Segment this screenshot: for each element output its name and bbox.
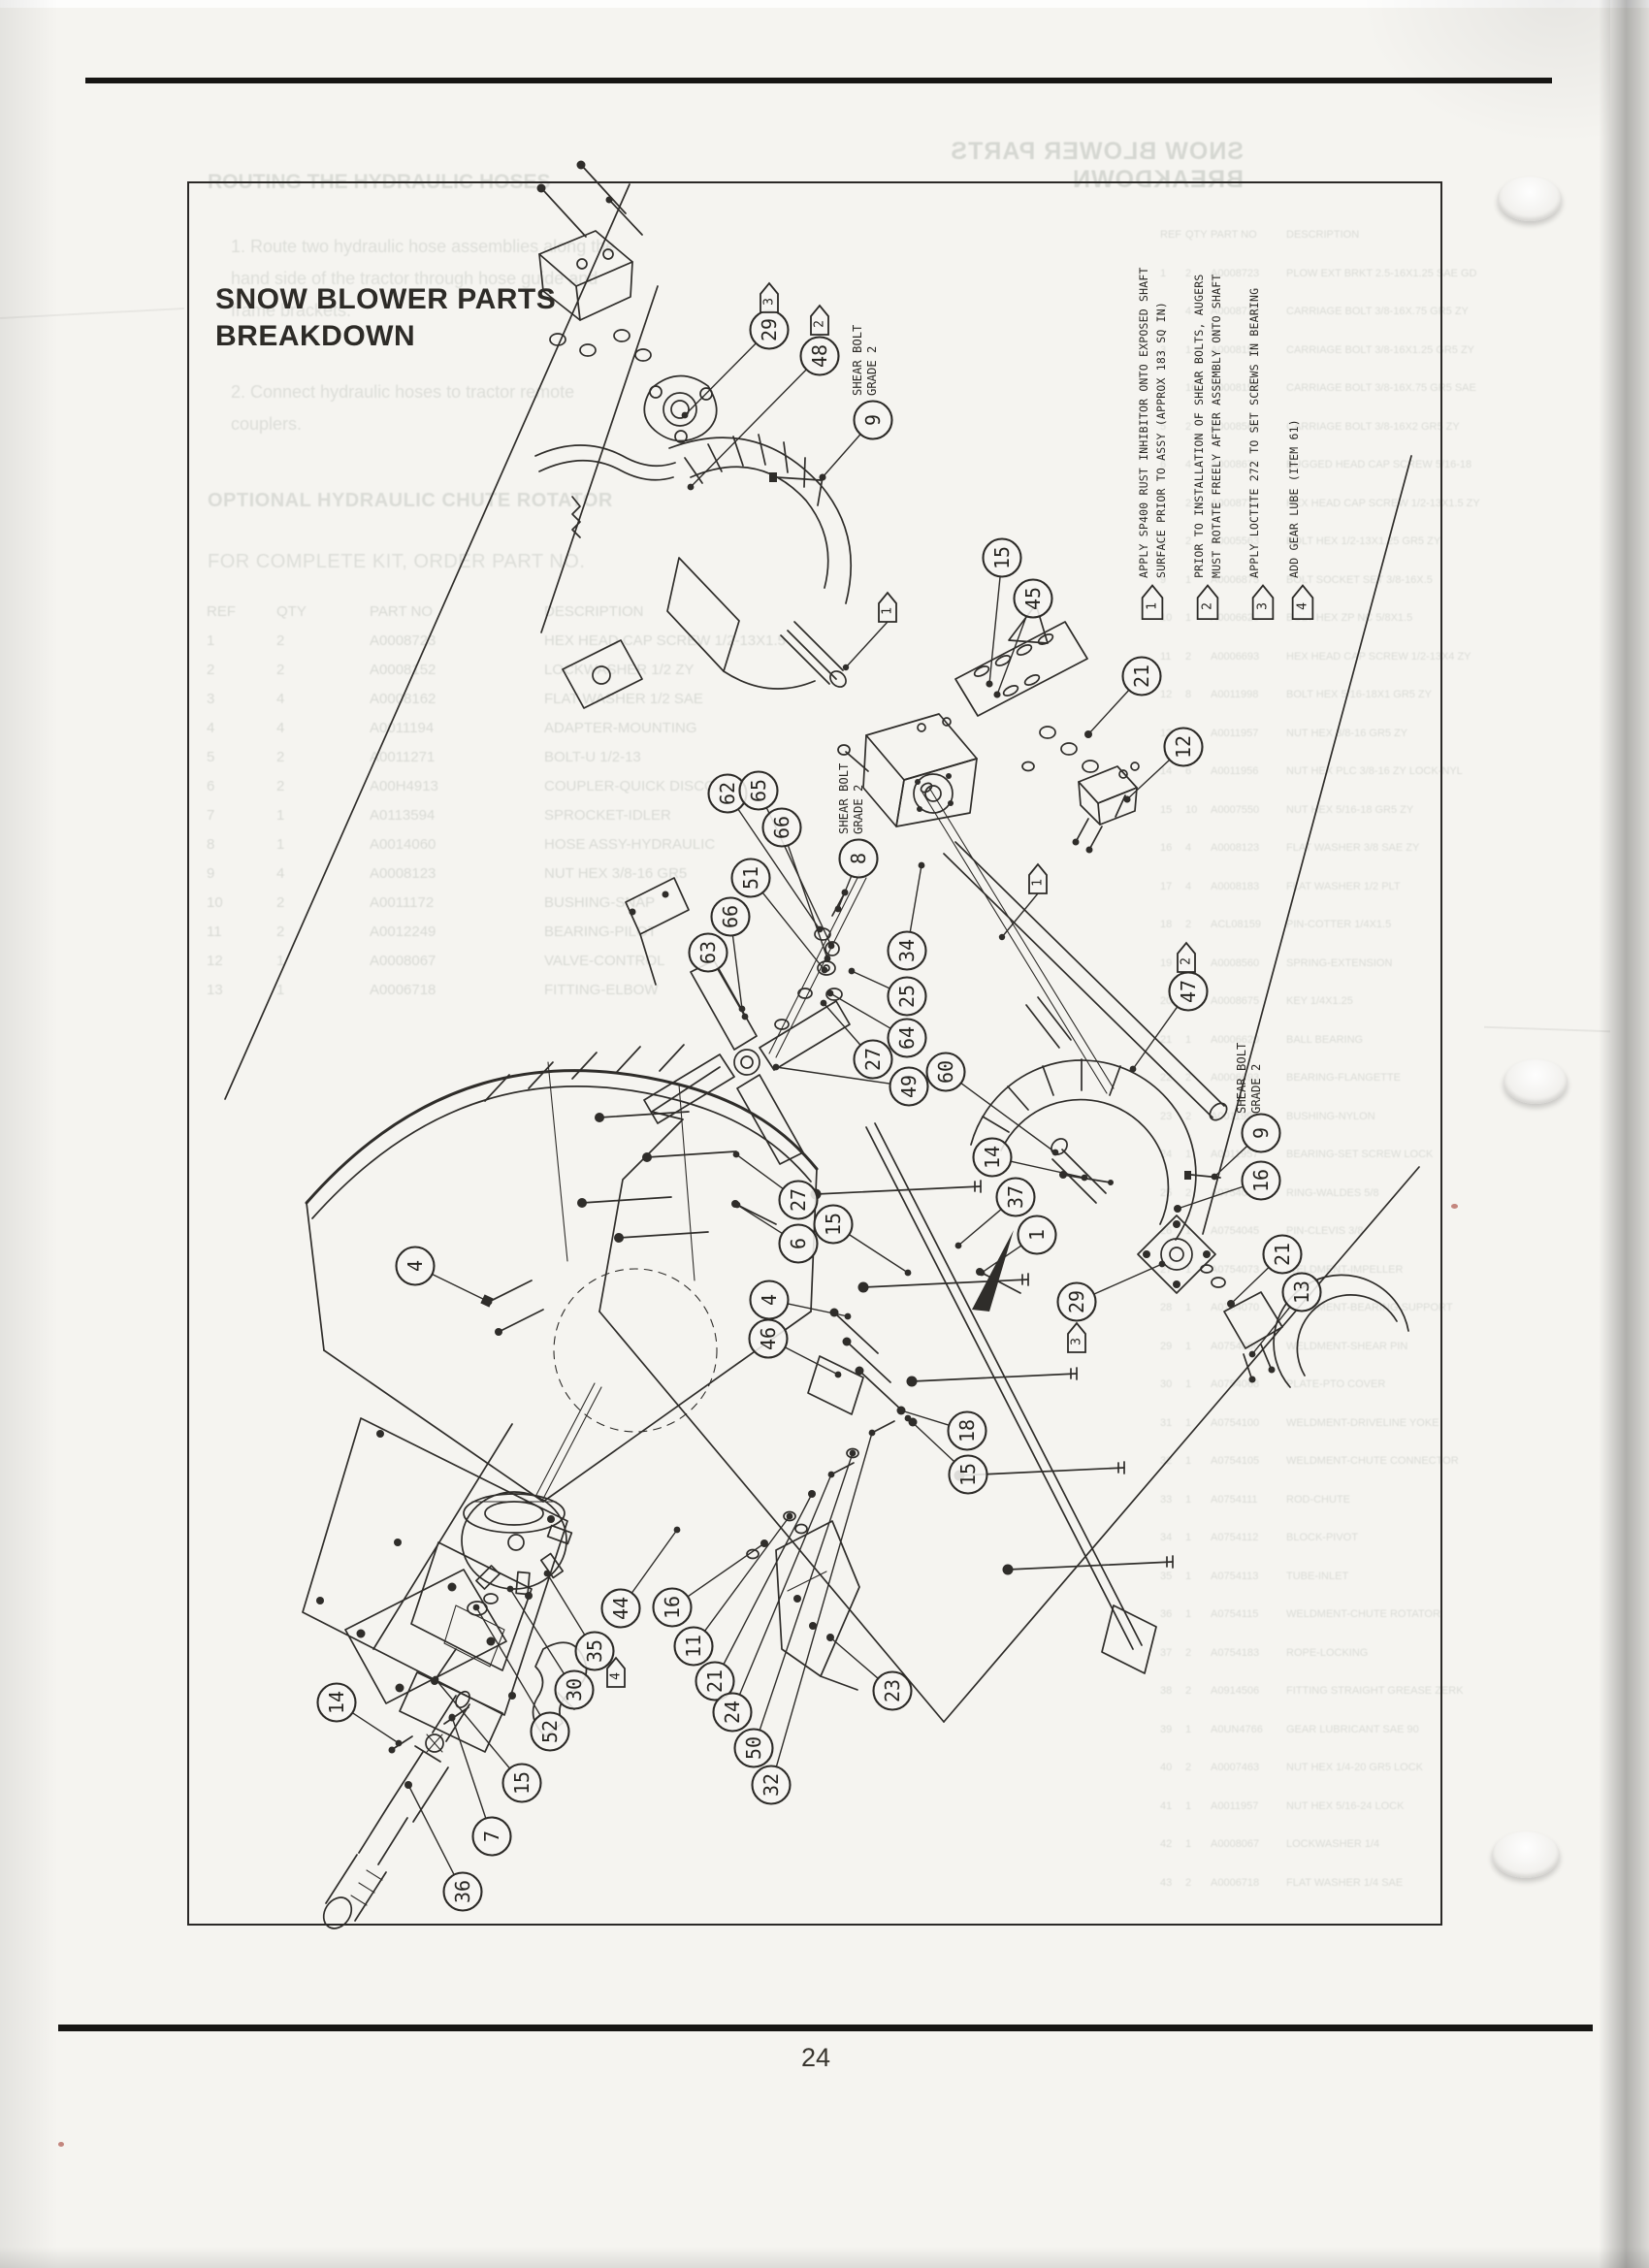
leader-line bbox=[830, 993, 890, 1028]
pennant-number: 4 bbox=[1296, 602, 1310, 610]
shear-bolt-label-line: SHEAR BOLT bbox=[1235, 1042, 1248, 1114]
note-text-line: ADD GEAR LUBE (ITEM 61) bbox=[1287, 419, 1301, 578]
leader-dot bbox=[734, 1202, 741, 1209]
pennant-number: 2 bbox=[1201, 602, 1215, 610]
callout-number: 1 bbox=[1025, 1229, 1049, 1241]
leader-dot bbox=[433, 1676, 439, 1683]
leader-line bbox=[718, 969, 745, 1017]
assembly-note-4: 4ADD GEAR LUBE (ITEM 61) bbox=[1287, 419, 1312, 619]
discharge-chute bbox=[667, 435, 851, 690]
callout-52: 52 bbox=[473, 1604, 569, 1751]
leader-dot bbox=[835, 906, 842, 913]
leader-dot bbox=[986, 681, 993, 688]
leader-dot bbox=[843, 664, 849, 670]
callout-number: 15 bbox=[990, 546, 1014, 569]
callout-49: 49 bbox=[773, 1064, 928, 1106]
callout-4: 4 bbox=[751, 1281, 852, 1320]
leader-dot bbox=[809, 1491, 816, 1498]
pennant-flag-2 bbox=[811, 306, 828, 335]
callout-number: 15 bbox=[822, 1213, 845, 1236]
callout-number: 16 bbox=[661, 1596, 684, 1619]
leader-line bbox=[760, 1453, 853, 1730]
leader-dot bbox=[1212, 1174, 1218, 1181]
flange-bearing-top bbox=[644, 375, 716, 442]
leader-dot bbox=[396, 1740, 403, 1747]
callout-number: 44 bbox=[609, 1597, 632, 1620]
shear-bolt-label-line: SHEAR BOLT bbox=[851, 324, 864, 396]
callout-number: 32 bbox=[760, 1773, 783, 1797]
pennant-flag-3 bbox=[760, 283, 778, 312]
diagram-pennant-2: 2 bbox=[1178, 943, 1195, 972]
pennant-number: 4 bbox=[609, 1672, 624, 1680]
pennant-number: 1 bbox=[1146, 602, 1160, 610]
leader-dot bbox=[1175, 1206, 1181, 1213]
callout-9: 9 bbox=[820, 402, 892, 481]
callout-15: 15 bbox=[815, 1206, 912, 1277]
callout-number: 63 bbox=[696, 941, 720, 964]
callout-45: 45 bbox=[994, 580, 1052, 698]
pennant-flag-3 bbox=[1068, 1323, 1085, 1352]
shear-bolt-label-line: GRADE 2 bbox=[865, 346, 879, 396]
leader-line bbox=[724, 1494, 812, 1664]
leader-dot bbox=[827, 990, 834, 997]
callout-29: 29 bbox=[682, 311, 789, 419]
assembly-note-3: 3APPLY LOCTITE 272 TO SET SCREWS IN BEAR… bbox=[1247, 288, 1273, 619]
shear-bolt-label: SHEAR BOLTGRADE 2 bbox=[851, 324, 879, 396]
callout-16: 16 bbox=[1175, 1162, 1280, 1213]
pennant-number: 3 bbox=[762, 298, 777, 306]
leader-dot bbox=[742, 1014, 749, 1021]
callout-13: 13 bbox=[1249, 1274, 1321, 1358]
callout-number: 4 bbox=[758, 1294, 781, 1306]
leader-line bbox=[852, 971, 889, 988]
callout-number: 48 bbox=[808, 344, 831, 368]
callout-35: 35 bbox=[544, 1571, 614, 1670]
leader-line bbox=[452, 1717, 486, 1818]
callout-number: 49 bbox=[897, 1075, 921, 1098]
leader-line bbox=[1214, 1147, 1246, 1177]
assembly-note-1: 1APPLY SP400 RUST INHIBITOR ONTO EXPOSED… bbox=[1137, 267, 1168, 619]
leader-dot bbox=[905, 1270, 912, 1277]
callout-number: 14 bbox=[981, 1146, 1004, 1169]
leader-dot bbox=[787, 1513, 793, 1520]
leader-dot bbox=[449, 1714, 456, 1721]
callout-number: 35 bbox=[583, 1639, 606, 1663]
callout-7: 7 bbox=[449, 1714, 511, 1856]
leader-dot bbox=[473, 1604, 480, 1611]
callout-number: 4 bbox=[404, 1260, 427, 1272]
shear-bolt-label-line: GRADE 2 bbox=[1249, 1064, 1263, 1114]
leader-line bbox=[1252, 1308, 1290, 1354]
callout-21: 21 bbox=[1085, 658, 1161, 738]
leader-dot bbox=[674, 1527, 681, 1534]
callout-number: 66 bbox=[719, 905, 742, 928]
callout-48: 48 bbox=[688, 338, 839, 491]
drum-spacer bbox=[468, 1594, 498, 1615]
pennant-flag-1 bbox=[1029, 864, 1047, 893]
leader-dot bbox=[821, 1000, 827, 1007]
callout-number: 37 bbox=[1004, 1185, 1027, 1209]
pennant-flag-1 bbox=[1143, 586, 1163, 620]
leader-line bbox=[961, 1084, 1055, 1152]
shear-bolt-label-line: SHEAR BOLT bbox=[837, 762, 851, 834]
leader-dot bbox=[898, 1408, 905, 1414]
leader-line bbox=[910, 865, 921, 931]
leader-line bbox=[789, 1304, 848, 1316]
frame-lines bbox=[225, 184, 1419, 1722]
leader-line bbox=[1133, 1007, 1177, 1069]
leader-dot bbox=[820, 474, 826, 481]
callout-1: 1 bbox=[979, 1216, 1056, 1277]
callout-number: 47 bbox=[1177, 980, 1200, 1003]
callout-number: 45 bbox=[1021, 587, 1045, 610]
assembly-note-2: 2PRIOR TO INSTALLATION OF SHEAR BOLTS, A… bbox=[1192, 275, 1223, 620]
leader-dot bbox=[850, 1450, 857, 1457]
rotator-motor-block bbox=[1073, 762, 1140, 854]
leader-dot bbox=[845, 1313, 852, 1320]
callout-number: 11 bbox=[682, 1635, 705, 1658]
callout-47: 47 bbox=[1130, 973, 1208, 1073]
leader-line bbox=[850, 1235, 908, 1273]
callout-number: 13 bbox=[1290, 1280, 1313, 1304]
callout-number: 34 bbox=[895, 939, 919, 962]
callout-24: 24 bbox=[714, 1472, 835, 1732]
callout-4: 4 bbox=[397, 1247, 493, 1306]
leader-dot bbox=[905, 1415, 912, 1422]
callout-number: 30 bbox=[563, 1678, 586, 1701]
callout-number: 62 bbox=[716, 782, 739, 805]
leader-dot bbox=[688, 484, 695, 491]
leader-dot bbox=[544, 1571, 551, 1577]
front-pivot-plate bbox=[303, 1418, 567, 1715]
callout-number: 64 bbox=[895, 1026, 919, 1050]
leader-dot bbox=[827, 1635, 834, 1641]
leader-dot bbox=[1085, 731, 1092, 738]
leader-dot bbox=[486, 1299, 493, 1306]
pennant-flag-2 bbox=[1178, 943, 1195, 972]
callout-number: 8 bbox=[847, 853, 870, 864]
leader-line bbox=[1088, 691, 1128, 734]
leader-dot bbox=[869, 1430, 876, 1437]
gearbox bbox=[838, 714, 1098, 826]
note-text-line: APPLY LOCTITE 272 TO SET SCREWS IN BEARI… bbox=[1247, 288, 1261, 578]
callout-number: 52 bbox=[538, 1720, 562, 1743]
pennant-flag-2 bbox=[1198, 586, 1218, 620]
pennant-number: 2 bbox=[1180, 957, 1194, 965]
pennant-number: 3 bbox=[1256, 602, 1271, 610]
pennant-number: 1 bbox=[881, 607, 895, 615]
leader-line bbox=[688, 1543, 764, 1597]
note-text-line: PRIOR TO INSTALLATION OF SHEAR BOLTS, AU… bbox=[1192, 275, 1206, 578]
callout-number: 36 bbox=[451, 1880, 474, 1903]
callout-14: 14 bbox=[974, 1139, 1088, 1182]
leader-line bbox=[1127, 761, 1169, 799]
pennant-flag-4 bbox=[1293, 586, 1313, 620]
leader-dot bbox=[733, 1151, 740, 1158]
callout-number: 46 bbox=[757, 1327, 780, 1350]
shear-bolt-label: SHEAR BOLTGRADE 2 bbox=[1235, 1042, 1263, 1114]
callout-23: 23 bbox=[827, 1635, 912, 1710]
impeller-drum bbox=[462, 1492, 571, 1594]
leader-line bbox=[510, 1589, 564, 1673]
shear-bolt-label: SHEAR BOLTGRADE 2 bbox=[837, 762, 865, 834]
callout-number: 9 bbox=[1249, 1127, 1273, 1139]
auger-fan bbox=[644, 960, 850, 1164]
callout-number: 21 bbox=[1130, 664, 1153, 688]
leader-dot bbox=[824, 956, 831, 962]
callout-number: 27 bbox=[787, 1188, 810, 1212]
callout-number: 24 bbox=[721, 1701, 744, 1724]
callout-29: 29 bbox=[1058, 1261, 1166, 1321]
leader-dot bbox=[507, 1586, 514, 1593]
leader-line bbox=[736, 1154, 783, 1188]
leader-dot bbox=[979, 1270, 986, 1277]
callout-number: 50 bbox=[742, 1736, 765, 1760]
leader-line bbox=[353, 1713, 399, 1743]
callout-number: 51 bbox=[739, 866, 762, 890]
crank-bracket bbox=[563, 640, 642, 708]
leader-line bbox=[433, 1275, 489, 1302]
exploded-parts-diagram: 2948915452112626566518666334256427496047… bbox=[0, 0, 1649, 2268]
leader-line bbox=[777, 1433, 872, 1766]
leader-dot bbox=[761, 1540, 768, 1547]
callout-number: 9 bbox=[861, 414, 885, 426]
leader-line bbox=[846, 622, 888, 667]
callout-34: 34 bbox=[889, 862, 926, 970]
leader-dot bbox=[1159, 1261, 1166, 1268]
callout-number: 18 bbox=[955, 1419, 979, 1442]
leader-dot bbox=[849, 968, 856, 975]
callout-number: 25 bbox=[895, 985, 919, 1008]
leader-dot bbox=[822, 967, 828, 974]
pennant-number: 2 bbox=[813, 320, 827, 328]
callout-63: 63 bbox=[690, 934, 749, 1021]
leader-line bbox=[830, 1637, 878, 1678]
callout-number: 7 bbox=[480, 1831, 503, 1842]
note-text-line: SURFACE PRIOR TO ASSY (APPROX 183 SQ IN) bbox=[1154, 302, 1168, 578]
diagram-pennant-2: 2 bbox=[811, 306, 828, 335]
callout-number: 66 bbox=[770, 816, 793, 839]
callout-number: 60 bbox=[934, 1060, 957, 1084]
chute-mount-bracket bbox=[955, 604, 1087, 716]
leader-line bbox=[989, 577, 1000, 684]
leader-dot bbox=[405, 1782, 412, 1789]
callout-11: 11 bbox=[675, 1513, 793, 1666]
shear-bolt-label-line: GRADE 2 bbox=[852, 785, 865, 834]
leader-dot bbox=[1228, 1301, 1235, 1308]
callout-66: 66 bbox=[763, 809, 831, 962]
leader-line bbox=[1012, 1161, 1084, 1178]
callout-25: 25 bbox=[849, 968, 926, 1016]
leader-dot bbox=[773, 1064, 780, 1071]
callout-36: 36 bbox=[405, 1782, 482, 1911]
chute-cap-assembly bbox=[537, 161, 652, 362]
diagram-pennant-1: 1 bbox=[843, 593, 896, 670]
leader-line bbox=[740, 1474, 831, 1695]
callout-number: 29 bbox=[1065, 1290, 1088, 1313]
leader-line bbox=[823, 435, 860, 477]
leader-line bbox=[1094, 1264, 1162, 1294]
leader-line bbox=[408, 1785, 454, 1874]
pennant-number: 3 bbox=[1070, 1338, 1084, 1345]
callout-number: 14 bbox=[325, 1691, 348, 1714]
callout-number: 21 bbox=[703, 1669, 727, 1693]
support-bracket bbox=[626, 878, 689, 985]
leader-line bbox=[958, 1210, 1001, 1246]
leader-dot bbox=[1130, 1066, 1137, 1073]
leader-line bbox=[547, 1573, 585, 1635]
callout-14: 14 bbox=[318, 1684, 403, 1747]
leader-dot bbox=[994, 692, 1001, 698]
diagram-pennant-3: 3 bbox=[1068, 1323, 1085, 1352]
callout-number: 15 bbox=[510, 1771, 533, 1795]
scanned-page: SNOW BLOWER PARTS BREAKDOWN ROUTING THE … bbox=[0, 0, 1649, 2268]
callout-46: 46 bbox=[750, 1320, 842, 1378]
leader-dot bbox=[999, 934, 1005, 940]
leader-dot bbox=[1249, 1351, 1256, 1358]
callout-number: 16 bbox=[1249, 1169, 1273, 1192]
leader-line bbox=[632, 1530, 677, 1593]
callout-27: 27 bbox=[821, 1000, 892, 1079]
note-text-line: APPLY SP400 RUST INHIBITOR ONTO EXPOSED … bbox=[1137, 267, 1150, 578]
leader-dot bbox=[1124, 796, 1131, 803]
callout-number: 6 bbox=[787, 1238, 810, 1249]
scraper-bar bbox=[811, 1123, 1174, 1673]
leader-dot bbox=[828, 1472, 835, 1478]
leader-dot bbox=[828, 943, 835, 950]
note-text-line: MUST ROTATE FREELY AFTER ASSEMBLY ONTO S… bbox=[1210, 275, 1223, 578]
callout-8: 8 bbox=[835, 840, 878, 913]
callout-number: 15 bbox=[956, 1463, 980, 1486]
callout-12: 12 bbox=[1124, 729, 1203, 803]
pennant-flag-1 bbox=[879, 593, 896, 622]
leader-dot bbox=[1052, 1150, 1059, 1156]
pennant-flag-3 bbox=[1253, 586, 1274, 620]
deflector-plates bbox=[535, 445, 675, 537]
callout-number: 27 bbox=[861, 1048, 885, 1071]
callout-number: 21 bbox=[1271, 1243, 1294, 1266]
callout-number: 29 bbox=[758, 318, 781, 341]
callout-number: 12 bbox=[1172, 735, 1195, 759]
leader-dot bbox=[1082, 1175, 1088, 1182]
leader-dot bbox=[919, 862, 925, 869]
leader-line bbox=[789, 846, 827, 958]
callout-number: 23 bbox=[881, 1679, 904, 1702]
leader-dot bbox=[682, 412, 689, 419]
callout-18: 18 bbox=[898, 1408, 986, 1450]
pennant-number: 1 bbox=[1031, 879, 1046, 887]
leader-dot bbox=[835, 1372, 842, 1378]
leader-line bbox=[737, 1205, 782, 1233]
callout-number: 65 bbox=[747, 779, 770, 802]
diagram-pennant-3: 3 bbox=[760, 283, 778, 312]
leader-dot bbox=[955, 1243, 962, 1249]
